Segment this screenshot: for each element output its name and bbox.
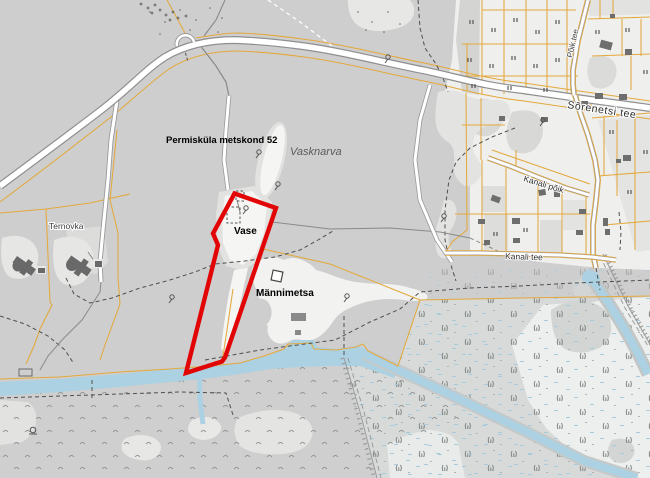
svg-text:Vase: Vase: [234, 226, 257, 237]
svg-text:Männimetsa: Männimetsa: [256, 288, 314, 299]
svg-text:Permisküla metskond 52: Permisküla metskond 52: [166, 135, 277, 146]
svg-text:Ternovka: Ternovka: [49, 221, 84, 231]
svg-text:Kanali tee: Kanali tee: [505, 251, 543, 262]
svg-text:Vasknarva: Vasknarva: [290, 146, 342, 158]
